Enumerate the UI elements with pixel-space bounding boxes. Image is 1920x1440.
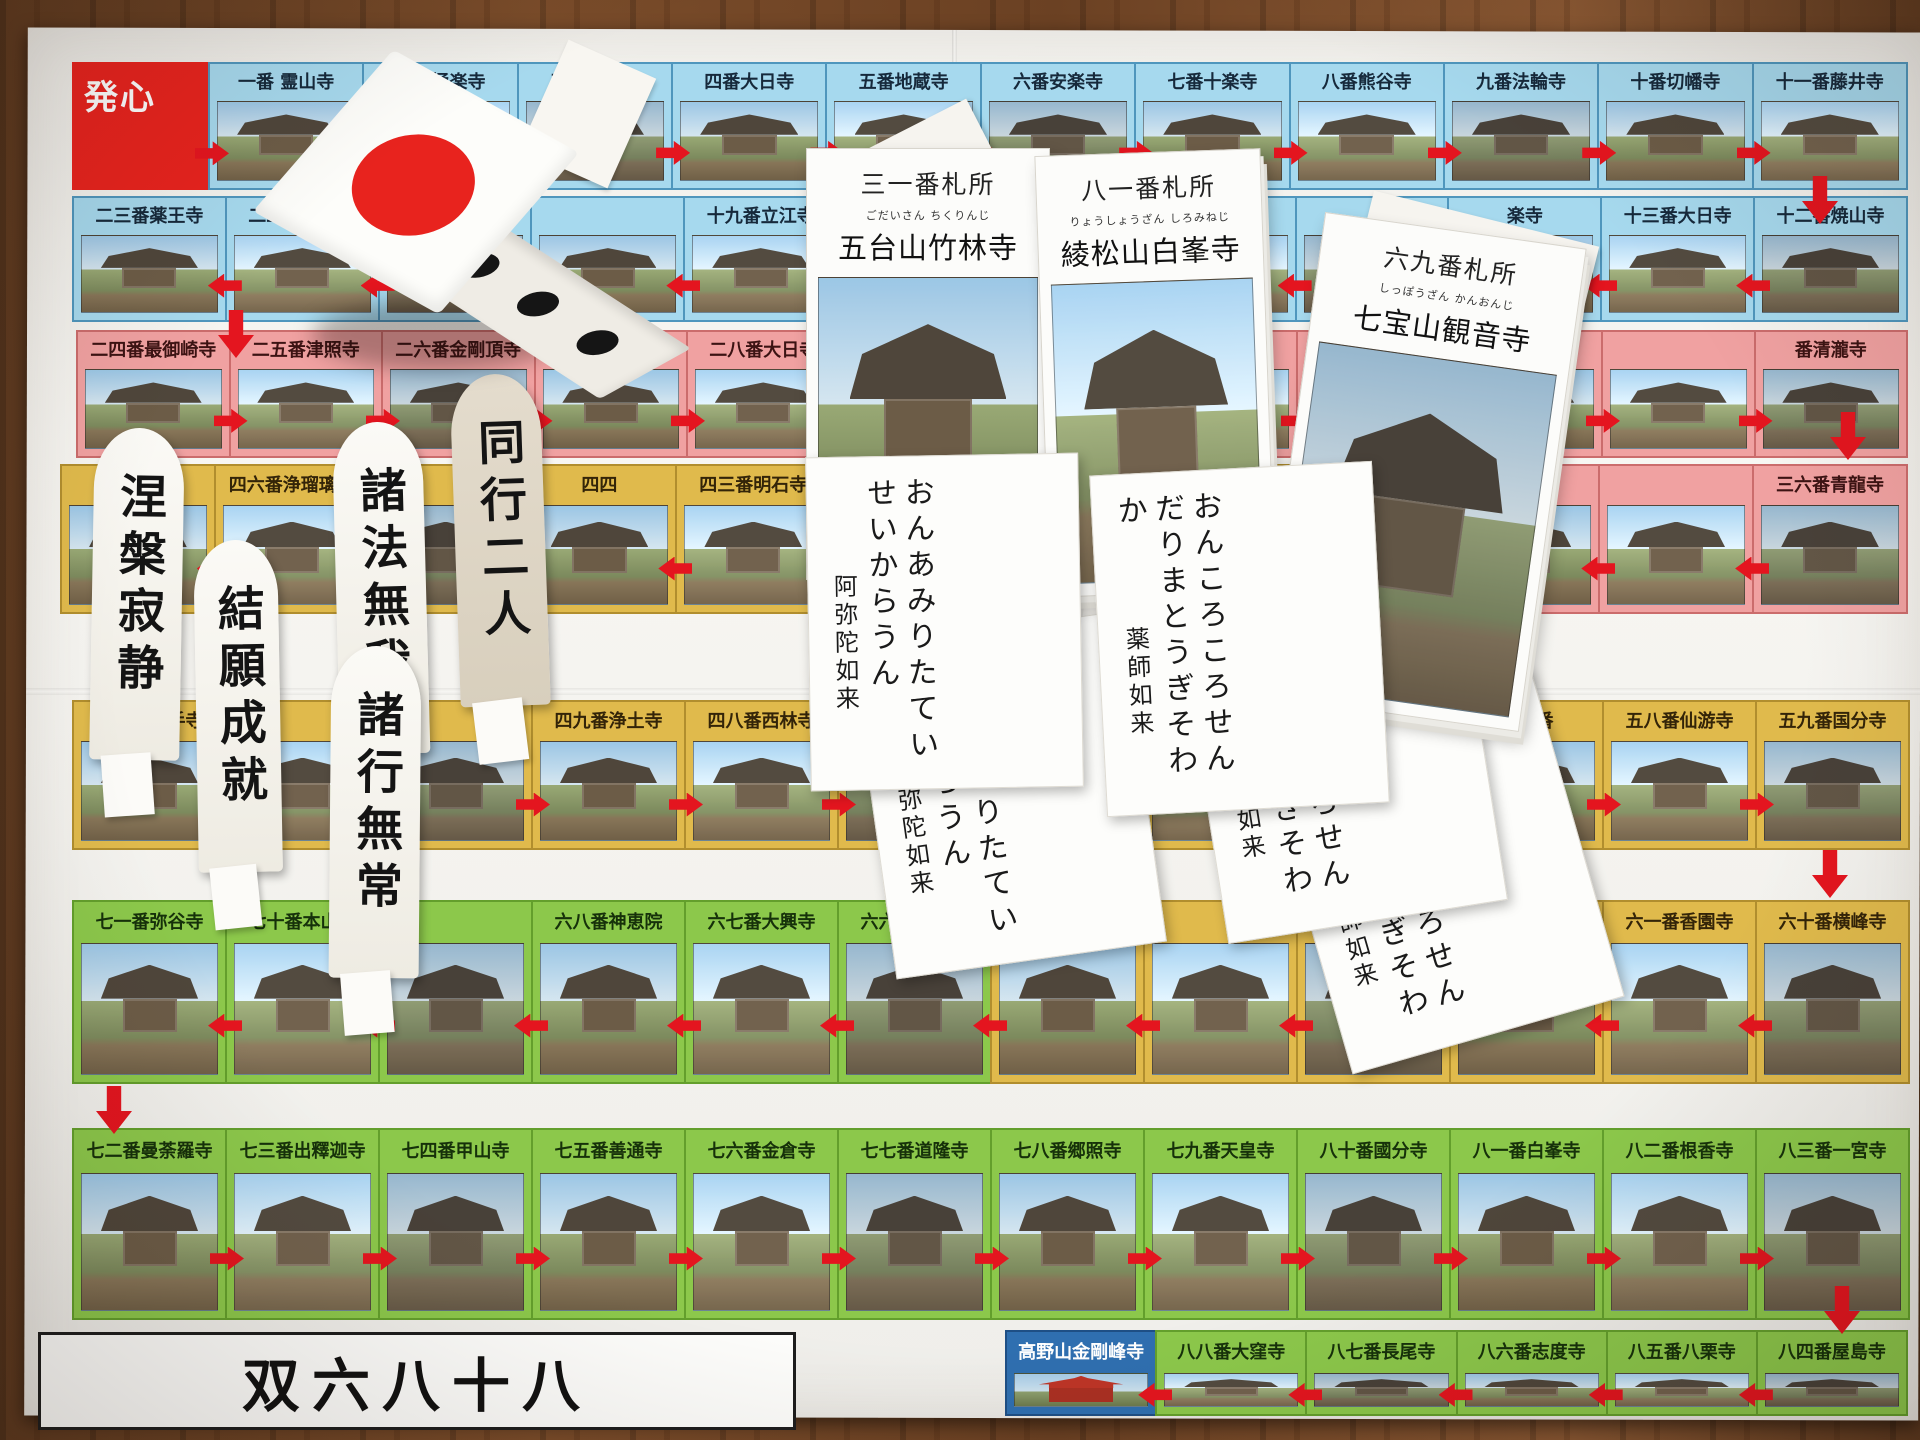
temple-photo [1452,101,1590,181]
temple-cell: 六一番香園寺 [1602,900,1757,1084]
temple-name-label: 七八番郷照寺 [992,1130,1143,1170]
temple-name-label: 七二番曼荼羅寺 [74,1130,225,1170]
temple-name-label: 八番熊谷寺 [1291,64,1443,98]
temple-photo [1615,1373,1749,1407]
temple-photo [81,1173,218,1311]
temple-cell: 五九番国分寺 [1755,700,1910,850]
standee-shogyo-mujo: 諸行無常 [329,646,422,979]
temple-cell: 四番大日寺 [671,62,827,190]
temple-photo [1761,101,1899,181]
temple-photo [999,1173,1136,1311]
temple-photo [1611,1173,1748,1311]
game-title-box: 双六八十八 [38,1332,796,1430]
temple-cell: 五八番仙游寺 [1602,700,1757,850]
temple-name-label: 高野山金剛峰寺 [1007,1332,1155,1370]
temple-name-label: 九番法輪寺 [1445,64,1597,98]
temple-photo [680,101,818,181]
temple-photo [1765,1373,1899,1407]
temple-cell: 六十番横峰寺 [1755,900,1910,1084]
temple-name-label: 十三番大日寺 [1602,198,1753,232]
temple-name-label: 五八番仙游寺 [1604,702,1755,738]
temple-cell: 四九番浄土寺 [531,700,686,850]
temple-photo [387,1173,524,1311]
temple-photo [540,741,677,841]
temple-cell: 八四番屋島寺 [1756,1330,1908,1416]
temple-name-label: 十一番藤井寺 [1754,64,1906,98]
temple-photo [693,943,830,1075]
temple-photo [234,1173,371,1311]
temple-photo [1458,1173,1595,1311]
temple-photo [684,505,822,605]
temple-name-label: 番清瀧寺 [1756,332,1907,366]
temple-photo [1764,943,1901,1075]
temple-photo [1465,1373,1599,1407]
goal-pagoda-photo [1014,1373,1148,1407]
temple-cell: 七八番郷照寺 [990,1128,1145,1320]
temple-name-label: 八七番長尾寺 [1307,1332,1455,1370]
temple-name-label: 七六番金倉寺 [686,1130,837,1170]
temple-name-label: 六一番香園寺 [1604,902,1755,940]
temple-cell: 二三番薬王寺 [72,196,227,322]
temple-cell: 八二番根香寺 [1602,1128,1757,1320]
temple-name-label: 八五番八栗寺 [1608,1332,1756,1370]
temple-cell: 七七番道隆寺 [837,1128,992,1320]
temple-photo [999,943,1136,1075]
temple-cell: 十一番藤井寺 [1752,62,1908,190]
temple-cell: 六八番神恵院 [531,900,686,1084]
temple-name-label [1600,466,1752,502]
temple-name-label: 二四番最御崎寺 [78,332,229,366]
temple-name-label: 八十番國分寺 [1298,1130,1449,1170]
temple-name-label: 七五番善通寺 [533,1130,684,1170]
start-cell-hosshin: 発心 [72,62,210,190]
temple-photo [81,943,218,1075]
temple-cell: 七一番弥谷寺 [72,900,227,1084]
temple-name-label: 五番地蔵寺 [827,64,979,98]
temple-photo [1761,505,1899,605]
temple-cell: 十二番焼山寺 [1753,196,1908,322]
temple-cell: 七五番善通寺 [531,1128,686,1320]
board-row-7: 七二番曼荼羅寺七三番出釋迦寺七四番甲山寺七五番善通寺七六番金倉寺七七番道隆寺七八… [72,1128,1910,1320]
standee-nehan-jakujo: 涅槃寂静 [89,427,185,761]
photo-of-sugoroku-board: 発心一番 霊山寺二番極楽寺三番金泉寺四番大日寺五番地蔵寺六番安楽寺七番十楽寺八番… [0,0,1920,1440]
temple-cell: 八十番國分寺 [1296,1128,1451,1320]
temple-photo [693,1173,830,1311]
temple-name-label: 四番大日寺 [673,64,825,98]
temple-cell: 三六番青龍寺 [1752,464,1908,614]
temple-name-label: 六十番横峰寺 [1757,902,1908,940]
temple-name-label: 二三番薬王寺 [74,198,225,232]
temple-cell: 八七番長尾寺 [1305,1330,1457,1416]
temple-cell: 番清瀧寺 [1754,330,1909,458]
mantra-card-amida: おんあみりたていせいからうん阿弥陀如来 [805,453,1084,792]
die-pip-icon [568,325,627,360]
temple-photo [1611,741,1748,841]
temple-cell: 八六番志度寺 [1456,1330,1608,1416]
temple-photo [540,1173,677,1311]
temple-cell: 十番切幡寺 [1597,62,1753,190]
paper-die [282,62,582,372]
temple-photo [1607,505,1745,605]
temple-name-label: 四四 [523,466,675,502]
temple-photo [1762,235,1899,313]
temple-name-label: 七番十楽寺 [1136,64,1288,98]
temple-name-label: 八一番白峯寺 [1451,1130,1602,1170]
temple-cell: 六七番大興寺 [684,900,839,1084]
temple-name-label: 七九番天皇寺 [1145,1130,1296,1170]
standee-dogyo-ninin: 同行二人 [449,373,551,708]
temple-photo [1305,1173,1442,1311]
temple-cell: 七六番金倉寺 [684,1128,839,1320]
temple-photo [1164,1373,1298,1407]
temple-cell: 十三番大日寺 [1600,196,1755,322]
temple-name-label: 六番安楽寺 [982,64,1134,98]
temple-name-label: 十番切幡寺 [1599,64,1751,98]
game-title: 双六八十八 [242,1339,592,1423]
temple-photo [540,943,677,1075]
mantra-card-yakushi: おんころころせんだりまとうぎそわか薬師如来 [1089,461,1390,817]
die-pip-icon [509,286,568,321]
temple-photo [1764,1173,1901,1311]
temple-name-label: 四九番浄土寺 [533,702,684,738]
temple-name-label: 八三番一宮寺 [1757,1130,1908,1170]
start-label: 発心 [84,78,156,118]
temple-cell: 七三番出釋迦寺 [225,1128,380,1320]
temple-photo [1610,369,1747,449]
temple-photo [530,505,668,605]
temple-cell: 八三番一宮寺 [1755,1128,1910,1320]
temple-cell: 八番熊谷寺 [1289,62,1445,190]
temple-photo [1606,101,1744,181]
temple-photo [1611,943,1748,1075]
temple-cell: 八五番八栗寺 [1606,1330,1758,1416]
temple-photo [846,1173,983,1311]
temple-name-label: 八六番志度寺 [1458,1332,1606,1370]
temple-photo [1764,741,1901,841]
temple-cell: 七九番天皇寺 [1143,1128,1298,1320]
temple-cell [1601,330,1756,458]
temple-name-label: 七七番道隆寺 [839,1130,990,1170]
temple-name-label: 五九番国分寺 [1757,702,1908,738]
temple-cell [1598,464,1754,614]
temple-photo [1609,235,1746,313]
temple-name-label: 七一番弥谷寺 [74,902,225,940]
temple-cell: 九番法輪寺 [1443,62,1599,190]
temple-cell: 七二番曼荼羅寺 [72,1128,227,1320]
temple-name-label: 六八番神恵院 [533,902,684,940]
temple-photo [81,235,218,313]
temple-photo [1152,1173,1289,1311]
board-row-8: 高野山金剛峰寺八八番大窪寺八七番長尾寺八六番志度寺八五番八栗寺八四番屋島寺 [1005,1330,1908,1416]
temple-cell: 八八番大窪寺 [1155,1330,1307,1416]
temple-cell: 七四番甲山寺 [378,1128,533,1320]
temple-name-label: 八四番屋島寺 [1758,1332,1906,1370]
temple-name-label: 六七番大興寺 [686,902,837,940]
temple-name-label: 三六番青龍寺 [1754,466,1906,502]
temple-name-label: 七三番出釋迦寺 [227,1130,378,1170]
temple-name-label [1603,332,1754,366]
goal-cell-koyasan: 高野山金剛峰寺 [1005,1330,1157,1416]
temple-photo [1314,1373,1448,1407]
temple-photo [1298,101,1436,181]
temple-name-label: 八二番根香寺 [1604,1130,1755,1170]
standee-ketsugan-joju: 結願成就 [193,539,283,872]
temple-name-label: 八八番大窪寺 [1157,1332,1305,1370]
temple-name-label: 七四番甲山寺 [380,1130,531,1170]
temple-cell: 八一番白峯寺 [1449,1128,1604,1320]
temple-photo [1152,943,1289,1075]
